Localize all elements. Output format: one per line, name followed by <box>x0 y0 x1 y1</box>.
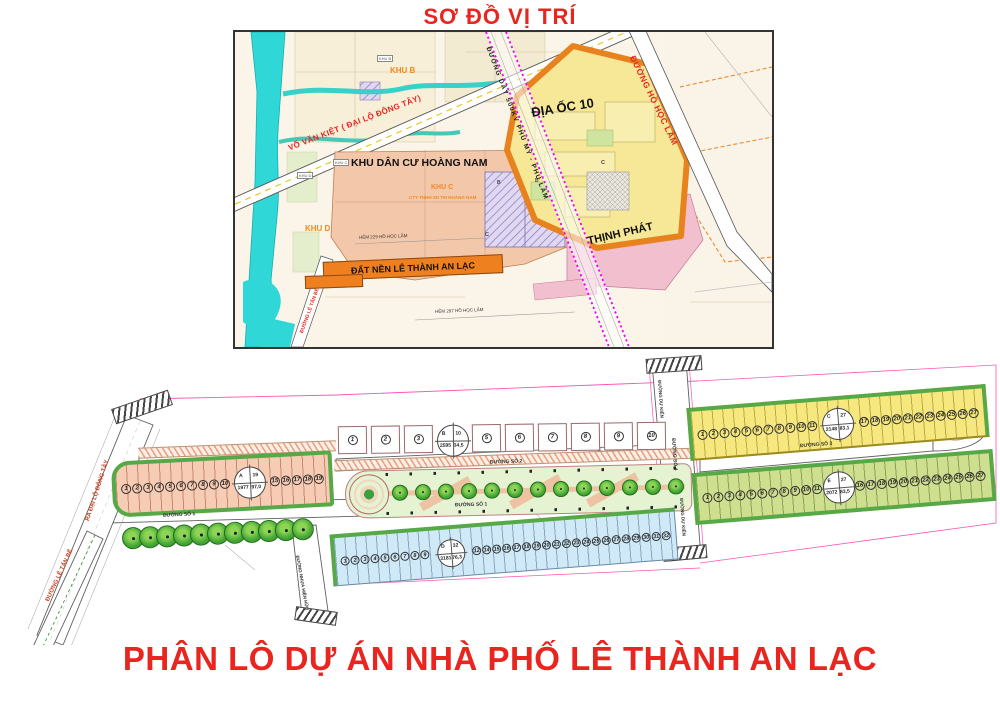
lot-number: 24 <box>935 410 946 421</box>
lot-number: 22 <box>920 475 931 486</box>
lot-number: 7 <box>400 551 410 561</box>
lot-number: 2 <box>350 555 360 565</box>
lot-number: 27 <box>968 407 979 418</box>
lot-number: 7 <box>187 480 198 491</box>
area-box-khu-c: KHU C <box>333 159 349 166</box>
lot-number: 9 <box>209 479 220 490</box>
lot-number: 19 <box>887 478 898 489</box>
lot-number: 7 <box>768 487 779 498</box>
lot-number: 1 <box>121 484 132 495</box>
lot-number: 25 <box>591 536 601 546</box>
lot-number: 17 <box>866 479 877 490</box>
lot-number: 3 <box>724 491 735 502</box>
lot-number: 18 <box>303 474 314 485</box>
lot-number: 8 <box>580 432 590 442</box>
lot-number: 17 <box>512 543 522 553</box>
tree-icon <box>622 479 638 495</box>
area-label-khu-c: KHU C <box>431 184 453 191</box>
block-c-salmon-label: C <box>485 232 489 238</box>
lot-number: 10 <box>220 479 231 490</box>
tree-icon <box>530 481 546 497</box>
lot-number: 2 <box>713 492 724 503</box>
road-label-so2: ĐƯỜNG SỐ 2 <box>490 458 523 465</box>
white-lot-box: 3 <box>404 425 433 453</box>
lot-number: 9 <box>420 550 430 560</box>
lot-number: 7 <box>763 424 774 435</box>
tree-icon <box>576 480 592 496</box>
lot-number: 14 <box>482 545 492 555</box>
lot-number: 6 <box>757 488 768 499</box>
lot-number: 2 <box>132 483 143 494</box>
lot-number: 24 <box>942 473 953 484</box>
lot-number: 9 <box>785 422 796 433</box>
block-c-yellow-label: C <box>601 160 605 166</box>
location-map: KHU B KHU B KHU D VÕ VĂN KIỆT ( ĐẠI LỘ Đ… <box>233 30 774 349</box>
white-lot-box: 2 <box>371 425 400 453</box>
lot-number: 6 <box>390 552 400 562</box>
block-a-emblem: A 19 1977 97,0 <box>233 466 267 500</box>
block-b-row: 123 B 10 2595 34,5 5678910 <box>338 422 666 461</box>
white-lot-box: 6 <box>505 424 534 452</box>
lot-number: 10 <box>801 485 812 496</box>
lot-number: 29 <box>631 533 641 543</box>
white-lot-box: 1 <box>338 426 367 454</box>
lot-number: 2 <box>708 428 719 439</box>
area-label-hoang-nam: KHU DÂN CƯ HOÀNG NAM <box>351 157 487 169</box>
lot-number: 1 <box>697 429 708 440</box>
lot-number: 20 <box>892 413 903 424</box>
lot-number: 6 <box>176 481 187 492</box>
white-lot-box: 10 <box>637 422 666 450</box>
hatch-block-b-label: B <box>497 180 501 186</box>
lot-number: 1 <box>347 435 357 445</box>
lot-number: 27 <box>611 535 621 545</box>
lot-number: 21 <box>902 412 913 423</box>
park-trees <box>392 478 693 501</box>
lot-number: 22 <box>562 539 572 549</box>
area-label-dat-nen: ĐẤT NỀN LÊ THÀNH AN LẠC <box>351 260 475 275</box>
lot-number: 5 <box>741 425 752 436</box>
tree-icon <box>645 479 661 495</box>
lot-number: 15 <box>270 476 281 487</box>
lot-number: 7 <box>547 432 557 442</box>
lot-number: 21 <box>552 540 562 550</box>
location-map-title: SƠ ĐỒ VỊ TRÍ <box>0 4 1000 30</box>
white-lot-box: 9 <box>604 422 633 450</box>
white-lot-box: 8 <box>571 423 600 451</box>
lot-number: 8 <box>779 486 790 497</box>
lot-number: 3 <box>143 483 154 494</box>
hatch-block-b2-label: B' <box>535 178 540 184</box>
lot-number: 11 <box>807 420 818 431</box>
lot-number: 5 <box>165 481 176 492</box>
lot-number: 12 <box>472 546 482 556</box>
lot-number: 27 <box>975 471 986 482</box>
lot-number: 26 <box>957 408 968 419</box>
area-label-khu-c-company: CTY TNHH XD TM HOÀNG NAM <box>409 195 476 200</box>
block-b-emblem: B 10 2595 34,5 <box>436 424 468 456</box>
lot-number: 5 <box>481 433 491 443</box>
block-d-emblem: D 32 3181 76,3 <box>436 538 466 568</box>
white-lot-box: 5 <box>472 424 501 452</box>
lot-number: 17 <box>292 475 303 486</box>
lot-number: 19 <box>314 474 325 485</box>
lot-number: 3 <box>719 427 730 438</box>
lot-number: 5 <box>380 553 390 563</box>
tree-icon <box>484 482 500 498</box>
lot-number: 8 <box>774 423 785 434</box>
tree-icon <box>668 478 684 494</box>
road-label-so1-b: ĐƯỜNG SỐ 1 <box>455 502 487 509</box>
area-label-khu-d: KHU D <box>305 224 330 233</box>
tree-icon <box>438 483 454 499</box>
lot-number: 21 <box>909 476 920 487</box>
real-estate-poster: SƠ ĐỒ VỊ TRÍ <box>0 0 1000 704</box>
tree-icon <box>461 483 477 499</box>
lot-number: 23 <box>924 411 935 422</box>
lot-number: 22 <box>913 412 924 423</box>
lot-number: 15 <box>492 544 502 554</box>
lot-number: 19 <box>532 541 542 551</box>
lot-number: 4 <box>730 426 741 437</box>
lot-number: 1 <box>702 493 713 504</box>
lot-number: 25 <box>946 409 957 420</box>
lot-number: 8 <box>198 480 209 491</box>
block-e-emblem: E 27 2072 83,5 <box>821 470 855 504</box>
lot-number: 24 <box>582 537 592 547</box>
lot-number: 1 <box>340 556 350 566</box>
park-plaza <box>349 474 390 515</box>
lot-number: 16 <box>281 475 292 486</box>
lot-number: 18 <box>876 479 887 490</box>
lot-number: 2 <box>380 435 390 445</box>
lot-number: 16 <box>502 543 512 553</box>
block-c-emblem: C 27 2148 83,1 <box>821 406 855 440</box>
lot-number: 28 <box>621 534 631 544</box>
lot-number: 20 <box>542 540 552 550</box>
lot-number: 19 <box>881 414 892 425</box>
tree-icon <box>392 485 408 501</box>
lot-number: 18 <box>870 415 881 426</box>
lot-number: 25 <box>953 472 964 483</box>
area-box-khu-d: KHU D <box>297 172 313 179</box>
block-a: 12345678910 A 19 1977 97,0 1516171819 <box>111 450 335 517</box>
lot-number: 26 <box>964 472 975 483</box>
lot-number: 18 <box>522 542 532 552</box>
lot-number: 31 <box>651 532 661 542</box>
lot-number: 4 <box>370 554 380 564</box>
lot-number: 3 <box>413 434 423 444</box>
lot-number: 8 <box>410 551 420 561</box>
white-lot-box: 7 <box>538 423 567 451</box>
area-box-khu-b: KHU B <box>377 55 393 62</box>
lot-number: 30 <box>641 532 651 542</box>
lot-number: 4 <box>154 482 165 493</box>
lot-number: 26 <box>601 536 611 546</box>
lot-number: 20 <box>898 477 909 488</box>
lot-number: 32 <box>661 531 671 541</box>
lot-number: 6 <box>514 433 524 443</box>
lot-number: 10 <box>646 431 656 441</box>
tree-icon <box>599 480 615 496</box>
dat-nen-banner-step <box>305 274 363 289</box>
lot-number: 23 <box>572 538 582 548</box>
lot-number: 23 <box>931 474 942 485</box>
project-title: PHÂN LÔ DỰ ÁN NHÀ PHỐ LÊ THÀNH AN LẠC <box>0 640 1000 678</box>
lot-number: 3 <box>360 555 370 565</box>
tree-icon <box>553 481 569 497</box>
lot-number: 4 <box>735 490 746 501</box>
lot-number: 5 <box>746 489 757 500</box>
tree-icon <box>415 484 431 500</box>
lot-number: 9 <box>790 486 801 497</box>
lot-number: 6 <box>752 425 763 436</box>
lot-number: 17 <box>859 416 870 427</box>
block-a-lots: 12345678910 A 19 1977 97,0 1516171819 <box>115 454 330 513</box>
tree-icon <box>507 482 523 498</box>
lot-number: 10 <box>796 421 807 432</box>
area-label-khu-b: KHU B <box>390 66 415 75</box>
lot-number: 9 <box>613 431 623 441</box>
